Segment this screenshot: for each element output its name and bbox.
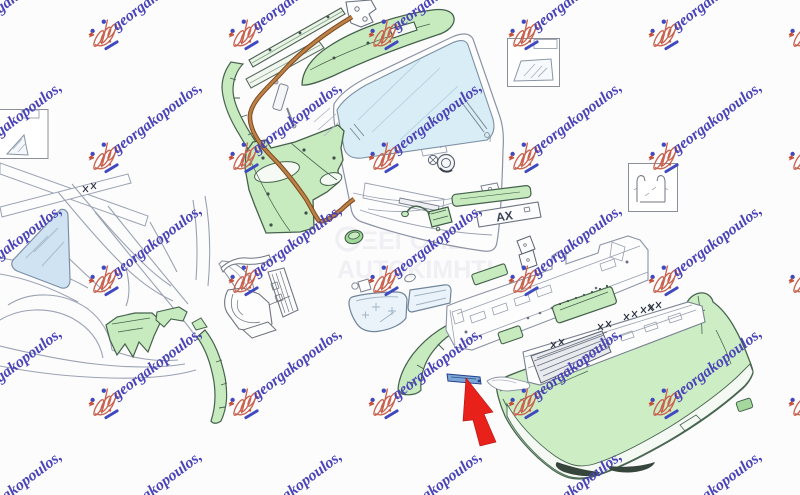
svg-text:AX: AX: [495, 208, 513, 224]
